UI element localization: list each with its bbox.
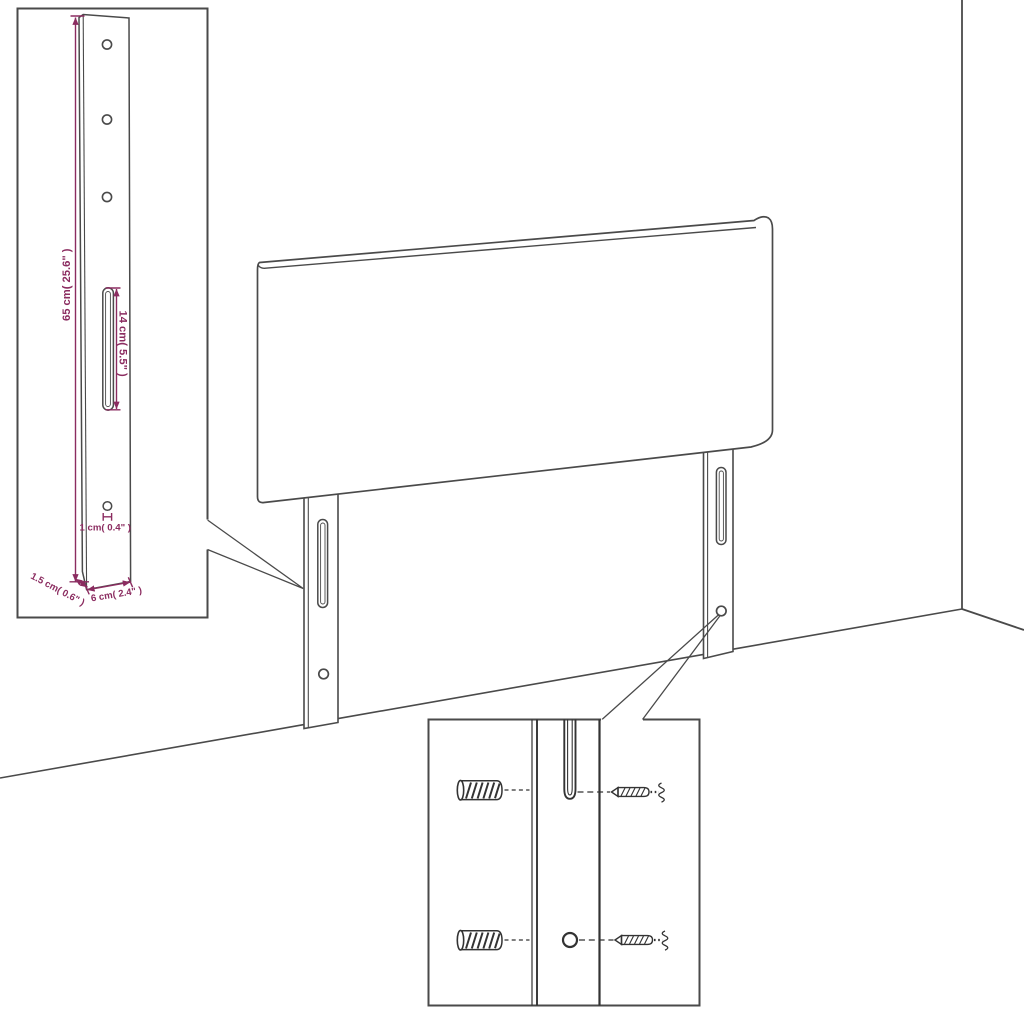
right-leg [704, 448, 734, 659]
floor-line-right [962, 609, 1024, 630]
diagram-page: 65 cm( 25.6" ) 14 cm( 5.5" ) 1 cm( 0.4" … [0, 0, 1024, 1024]
mounting-hole-1 [102, 40, 111, 49]
mounting-hole-2 [102, 115, 111, 124]
right-leg-slot [716, 468, 726, 545]
callout-left-leg [208, 520, 304, 589]
small-hole [103, 502, 112, 511]
mounting-hole-3 [102, 192, 111, 201]
dim-hole-label: 1 cm( 0.4" ) [80, 523, 131, 534]
right-leg-screw-hole [717, 606, 727, 616]
leg-detail-drawing [79, 15, 131, 590]
left-leg-hole [319, 669, 329, 679]
keyhole-slot [103, 288, 114, 410]
headboard [258, 217, 773, 729]
dim-height-label: 65 cm( 25.6" ) [61, 248, 73, 321]
dim-slot-label: 14 cm( 5.5" ) [117, 311, 129, 378]
left-leg [304, 494, 338, 728]
diagram-canvas: 65 cm( 25.6" ) 14 cm( 5.5" ) 1 cm( 0.4" … [0, 0, 1024, 1024]
hardware-detail-inset [429, 720, 700, 1006]
callout-screw-hole [602, 615, 720, 720]
headboard-panel [258, 217, 773, 503]
left-leg-slot [318, 520, 328, 608]
leg-detail-inset: 65 cm( 25.6" ) 14 cm( 5.5" ) 1 cm( 0.4" … [18, 9, 208, 618]
